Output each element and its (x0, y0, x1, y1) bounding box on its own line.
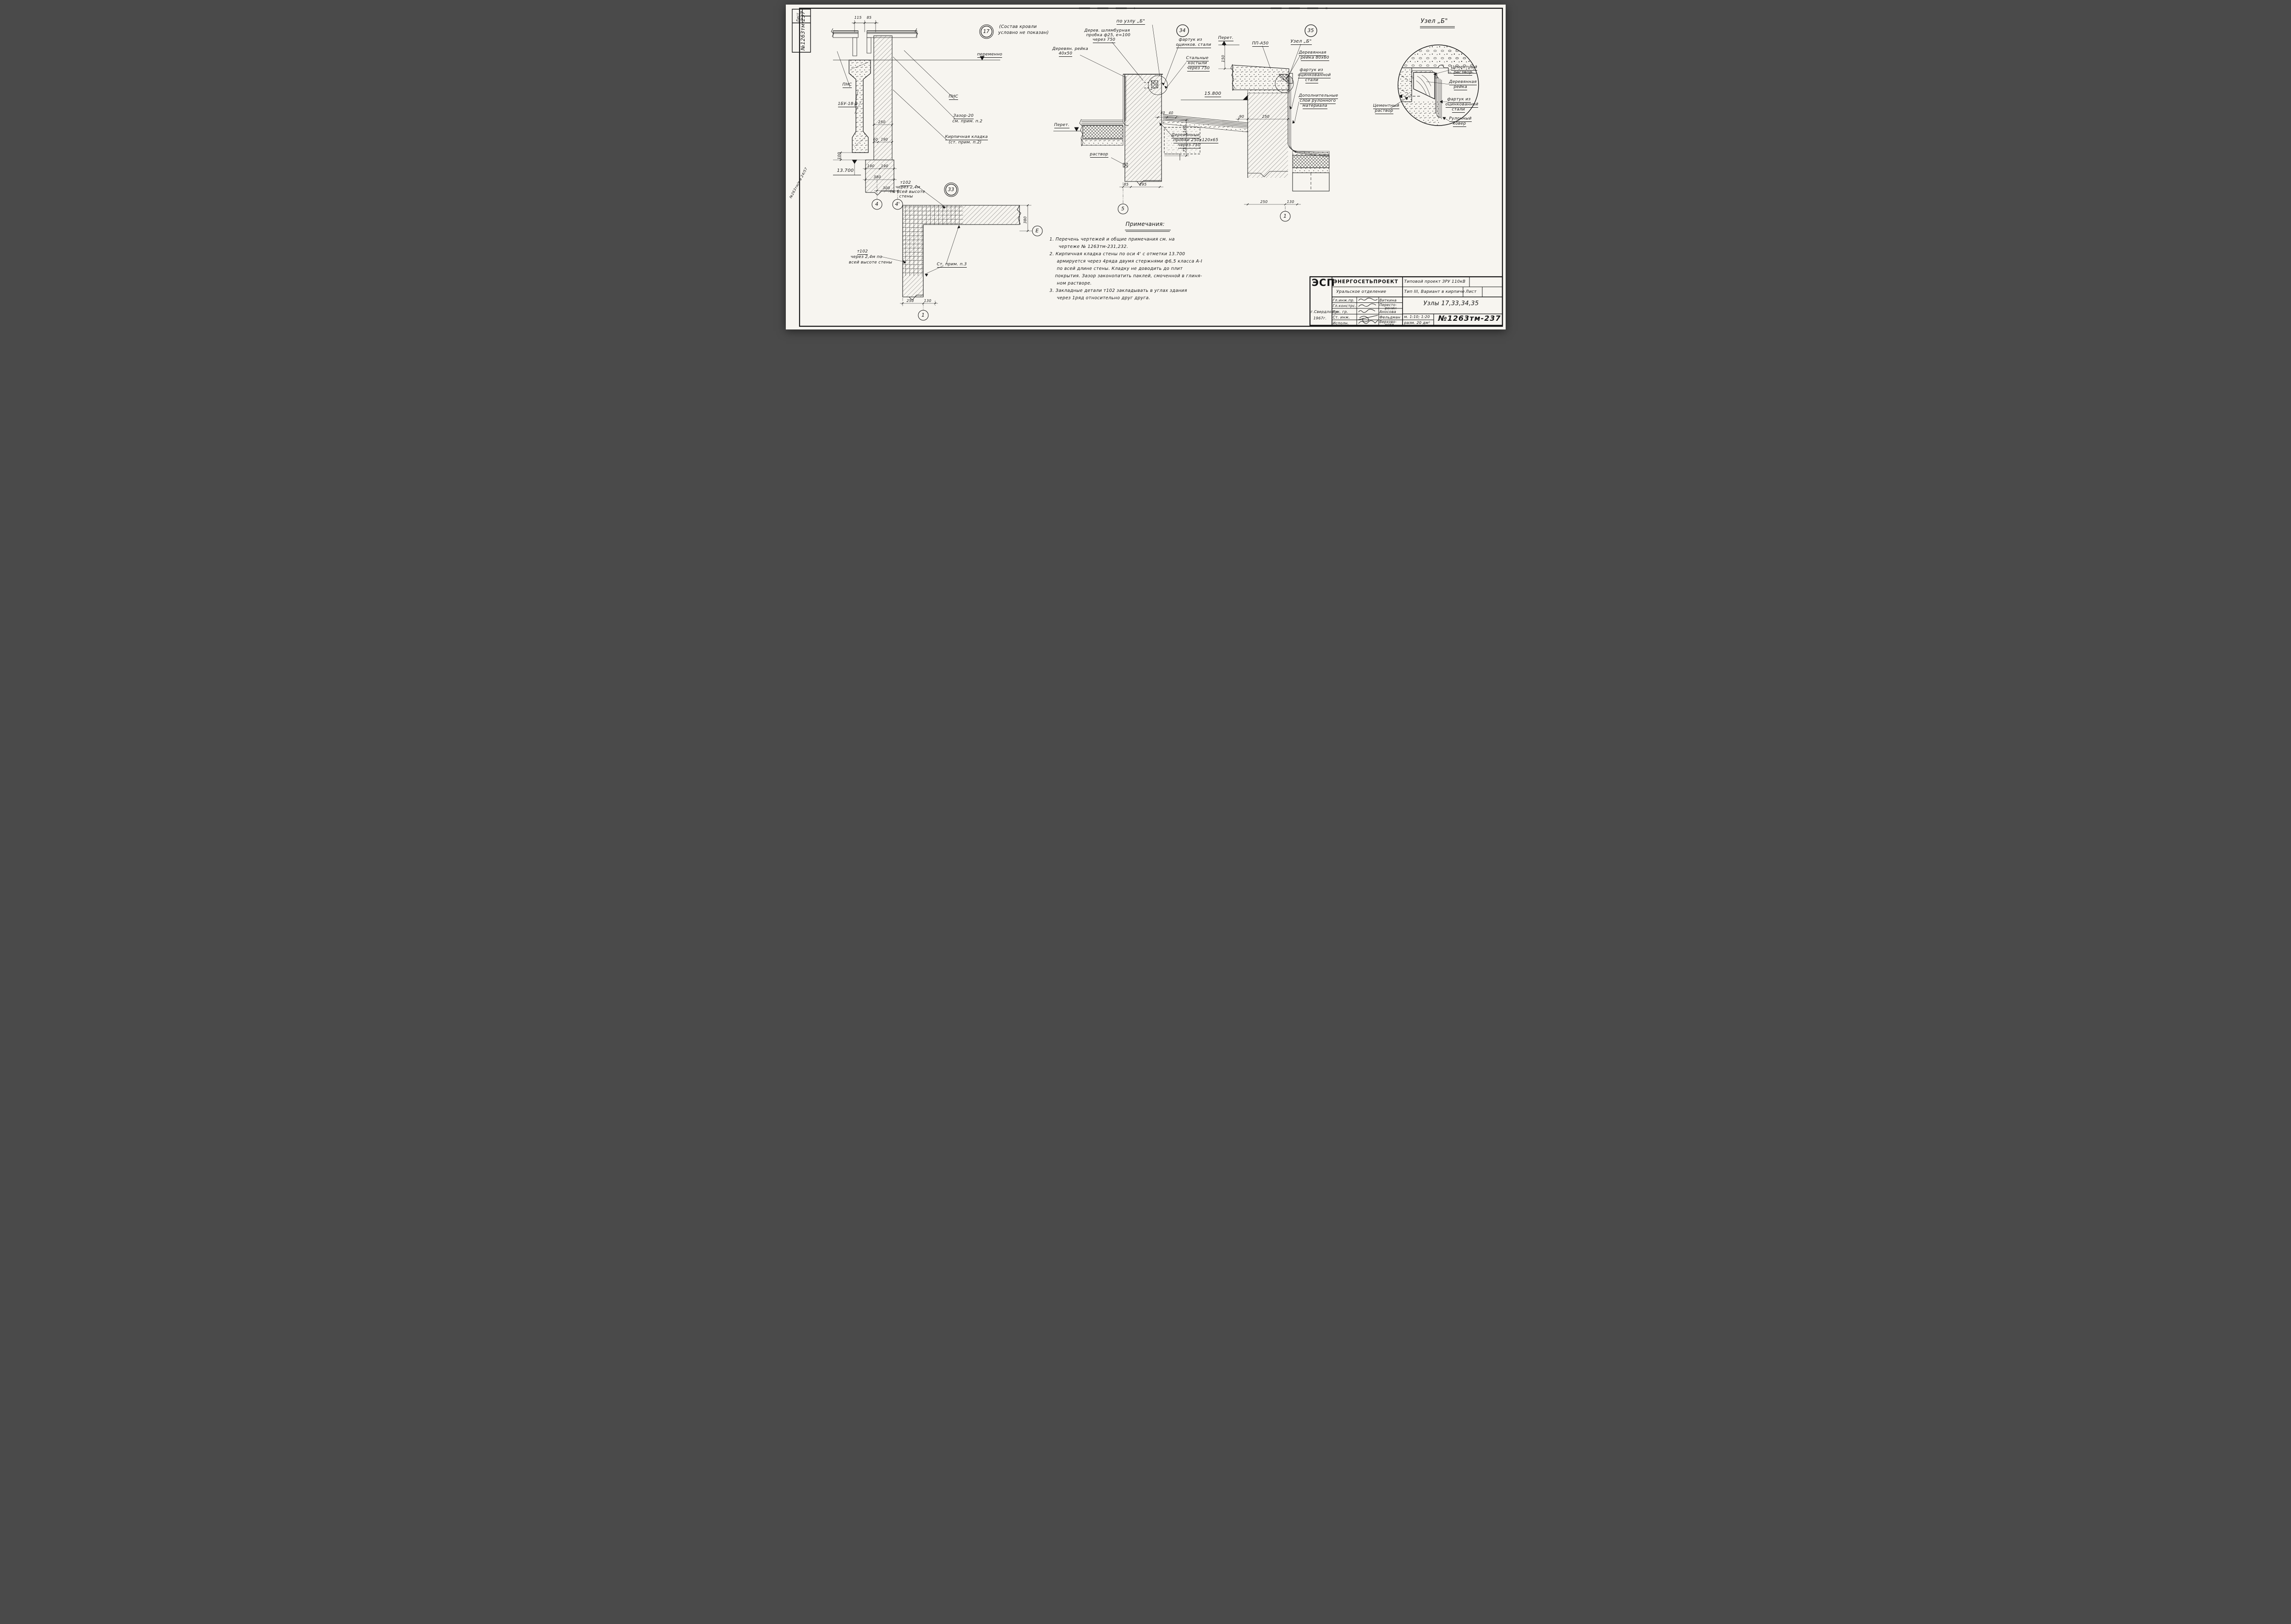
notes-title: Примечания: (1126, 222, 1165, 226)
d34-label-reika-1: Деревян. рейка (1052, 47, 1088, 51)
d34-label-rastvor: раствор (1090, 152, 1108, 158)
drawing-sheet: Лист №1263тм-237 №263тм/в а 24/57 17 (Со… (786, 5, 1506, 329)
d34-label-peret: Перет. (1054, 123, 1069, 128)
tb-size: разм. 20 дм² (1404, 321, 1430, 325)
note-line-4: армируется через 4ряда двумя стержнями ф… (1057, 259, 1202, 264)
tb-project-line-2: Тип III, Вариант в кирпиче (1404, 290, 1465, 294)
d35-label-fartuk-2: оцинкованной (1298, 73, 1331, 78)
d35-label-dop-1: Дополнительные (1299, 93, 1338, 99)
d34-elevation: 15.800 (1205, 92, 1222, 97)
nodeB-label-cement-2: раствор (1454, 70, 1472, 76)
d34-dim-295: 295 (1140, 182, 1147, 187)
d34-label-der-1: Деревянные (1172, 133, 1200, 138)
d35-label-pp-a50: ПП-А50 (1252, 41, 1269, 47)
note-line-1: 1. Перечень чертежей и общие примечания … (1050, 237, 1175, 242)
d35-label-dop-2: слои рулонного (1300, 99, 1336, 104)
tb-list-label: Лист (1466, 290, 1477, 294)
d33-axis-E: Е (1032, 228, 1043, 234)
detail-17-linework (831, 20, 1000, 209)
d17-roof-note-2: условно не показан) (998, 31, 1049, 35)
d17-label-beam: 1БУ-18-2 (838, 102, 858, 107)
d17-label-brick-2: (ст. прим. п.2) (949, 140, 982, 145)
d35-dim-90: 90 (1239, 115, 1244, 119)
nodeB-label-fartuk-2: оцинкованной (1446, 102, 1479, 108)
d17-label-pns-left: ПНС (843, 82, 852, 88)
nodeB-label-fartuk-3: стали (1452, 107, 1465, 113)
d17-roof-note-1: (Состав кровли (999, 25, 1037, 29)
d35-label-fartuk-1: фартук из (1300, 68, 1323, 73)
d35-label-fartuk-3: стали (1305, 78, 1319, 83)
detail-34-linework (1053, 25, 1248, 214)
d17-label-peremenno: переменно (977, 52, 1003, 58)
d34-dim-40b: 40 (1169, 111, 1173, 115)
d35-label-reika-1: Деревянная (1299, 50, 1326, 56)
detail-33-callout: 33 (946, 187, 957, 192)
d17-dim-190a: 190 (867, 164, 875, 169)
d17-label-zazor-1: Зазор-20 (954, 114, 974, 119)
tb-drawing-number: №1263тм-237 (1438, 316, 1501, 321)
notes-underline (1125, 230, 1171, 231)
d34-label-kostyli-2: костыли (1188, 61, 1207, 66)
d34-label-probka-3: через 750 (1093, 38, 1116, 43)
tb-name-1: Виткина (1380, 298, 1397, 303)
d34-label-probka-2: пробка ф25, е=100 (1086, 33, 1131, 38)
d35-label-peret: Перет. (1218, 36, 1233, 41)
tb-role-2: Гл.констрс. (1333, 304, 1356, 308)
d34-label-kostyli-3: через 750 (1187, 66, 1210, 71)
corner-stamp-number: №1263тм-237 (800, 11, 805, 50)
d17-axis-4: 4 (871, 201, 882, 207)
tb-scale: м. 1:10; 1:20 (1404, 315, 1430, 319)
note-line-9: через 1ряд относительно друг друга. (1057, 296, 1151, 301)
d34-dim-40a: 40 (1161, 111, 1165, 115)
d17-dim-380: 380 (874, 175, 881, 180)
d34-dim-85: 85 (1124, 182, 1129, 187)
d34-axis-5: 5 (1118, 206, 1129, 212)
nodeB-label-cementL-2: раствор (1375, 109, 1393, 114)
nodeB-label-cement-1: Цементный (1451, 65, 1478, 71)
d35-dim-130: 130 (1287, 200, 1294, 204)
d33-label-left-3: всей высоте стены (849, 260, 893, 265)
d34-title-node-ref: по узлу „Б" (1117, 19, 1145, 25)
note-line-6: покрытия. Зазор законопатить паклей, смо… (1055, 274, 1202, 279)
detail-17-callout: 17 (981, 28, 992, 34)
tb-name-4: Фельдман (1380, 315, 1401, 320)
tb-logo: ЭСП (1312, 280, 1335, 285)
d33-dim-250: 250 (907, 299, 914, 303)
d17-dim-250: 250 (878, 120, 886, 125)
d33-label-left-2: через 2,4м по (851, 255, 882, 259)
nodeB-label-rulon-2: ковер (1453, 121, 1466, 127)
d35-dim-250: 250 (1262, 115, 1270, 119)
d33-label-prim: Ст. прим. п.3 (937, 262, 967, 268)
d35-dim-250b: 250 (1261, 200, 1268, 204)
note-line-7: ном растворе. (1057, 281, 1092, 286)
d17-label-pns-right: ПНС (949, 94, 959, 100)
node-B-linework (1391, 27, 1480, 126)
d33-label-left-1: т102 (857, 249, 868, 255)
detail-33-linework (881, 183, 1042, 320)
d33-label-top-2: через 2,4м (896, 185, 921, 190)
nodeB-label-cementL-1: Цементный (1373, 104, 1400, 109)
detail-35-callout: 35 (1305, 27, 1316, 33)
d17-label-brick-1: Кирпичная кладка (945, 135, 988, 140)
d17-dim-190: 190 (881, 137, 888, 142)
d33-label-top-4: стены (899, 194, 913, 199)
note-line-5: по всей длине стены. Кладку не доводить … (1057, 267, 1183, 271)
d33-axis-1: 1 (918, 312, 929, 318)
note-line-8: 3. Закладные детали т102 закладывать в у… (1050, 289, 1187, 293)
nodeB-label-rulon-1: Рулонный (1449, 116, 1472, 122)
d34-label-fartuk-2: оцинков. стали (1176, 43, 1211, 48)
d17-dim-85: 85 (867, 16, 872, 20)
d34-label-kostyli-1: Стальные (1186, 56, 1209, 61)
tb-city: г.Свердловск (1311, 310, 1338, 314)
d17-label-zazor-2: см. прим. п.2 (953, 119, 983, 124)
d34-label-fartuk-1: фартук из (1179, 38, 1202, 42)
tb-sheet-title: Узлы 17,33,34,35 (1424, 302, 1479, 306)
d33-dim-380: 380 (1023, 216, 1028, 224)
d17-dim-60: 60 (873, 137, 878, 142)
d17-axis-4p: 4' (892, 201, 903, 207)
d34-label-probka-1: Дерев. шлямбурная (1085, 28, 1130, 33)
tb-project-line-1: Типовой проект ЗРУ 110кВ (1404, 280, 1466, 284)
d35-label-reika-2: рейка 80х60 (1301, 55, 1329, 61)
d35-dim-150: 150 (1221, 55, 1226, 62)
d17-dim-115: 115 (855, 16, 862, 20)
d17-elevation: 13.700 (837, 169, 854, 173)
note-line-2: чертеже № 1263тм-231,232. (1059, 245, 1129, 249)
d35-axis-1: 1 (1280, 213, 1291, 219)
d35-label-node-ref: Узел „Б" (1291, 39, 1312, 45)
d17-dim-190b: 190 (881, 164, 888, 169)
tb-year: 1967г. (1314, 316, 1327, 321)
node-B-title: Узел „Б" (1421, 19, 1448, 24)
tb-role-1: Гл.инж.пр. (1333, 298, 1355, 303)
d34-label-reika-2: 40х50 (1059, 51, 1073, 57)
tb-department: Уральское отделение (1337, 290, 1387, 294)
tb-name-5b: нова (1385, 323, 1394, 327)
tb-role-5: Исполн. (1333, 321, 1349, 326)
d34-label-der-2: пробки 250х120х65 (1173, 138, 1218, 143)
d34-label-der-3: через 750 (1178, 143, 1201, 148)
d35-label-dop-3: материала (1303, 104, 1327, 109)
d34-dim-140: 140 (1183, 126, 1187, 133)
d33-dim-130: 130 (924, 299, 932, 303)
d17-dim-100: 100 (837, 152, 842, 159)
d33-label-top-3: по всей высоте (890, 190, 926, 194)
nodeB-label-fartuk-1: фартук из (1447, 97, 1471, 103)
nodeB-label-reika-1: Деревянная (1449, 80, 1477, 85)
detail-34-callout: 34 (1177, 27, 1188, 33)
note-line-3: 2. Кирпичная кладка стены по оси 4' с от… (1050, 252, 1185, 257)
d17-dim-300: 300 (883, 186, 890, 191)
tb-role-4: Ст. инж. (1333, 315, 1350, 320)
nodeB-label-reika-2: рейка (1454, 85, 1468, 90)
tb-name-3: Аносова (1380, 310, 1397, 314)
tb-organization: ЭНЕРГОСЕТЬПРОЕКТ (1334, 280, 1398, 284)
